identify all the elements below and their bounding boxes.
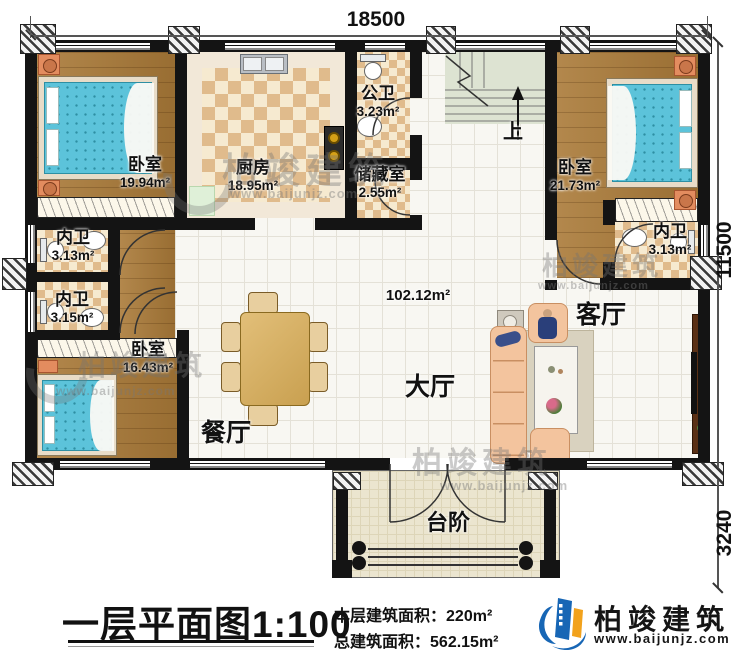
label-bath-left-lower: 内卫 3.15m² [41,290,103,327]
coffee-table [534,346,578,434]
wall-segment [175,218,255,230]
dim-ext [30,16,31,38]
window [365,40,405,52]
dim-ext [707,16,708,38]
room-area: 21.73m² [525,178,625,194]
nightstand [674,190,696,210]
dim-top-value: 18500 [340,8,412,32]
dim-right-main-value: 11500 [713,218,737,282]
room-name: 卧室 [95,155,195,175]
room-name: 储藏室 [340,165,420,185]
room-name: 内卫 [637,222,703,242]
dining-chair [248,292,278,314]
total-area-label: 总建筑面积： [334,634,430,651]
wall-segment [545,52,557,240]
wall-segment [410,52,422,98]
column-base-circle [352,541,366,555]
toilet-tank [360,54,386,62]
step-line [368,548,518,550]
nightstand [674,56,696,76]
pillar [168,26,200,54]
pillow [44,416,55,444]
dining-chair [308,362,328,392]
pillar [333,472,361,490]
porch-column-base [332,560,352,578]
nightstand [38,360,58,373]
bed-sheet-fold [90,380,114,451]
label-bedroom-tr: 卧室 21.73m² [525,158,625,195]
pillar [560,26,590,54]
pillow [46,129,59,166]
room-name: 内卫 [42,228,104,248]
porch-column-base [540,560,560,578]
label-living: 客厅 [571,300,631,330]
wall-segment [545,280,557,290]
window [225,40,335,52]
sink-basin [265,57,284,71]
label-bedroom-tl: 卧室 19.94m² [95,155,195,192]
label-dining: 餐厅 [196,418,256,448]
pillow [679,90,692,127]
window [60,458,150,470]
stove-burner [328,132,340,144]
total-area-stat: 总建筑面积：562.15m² [334,628,499,652]
column-base-circle [519,556,533,570]
person-body [538,317,557,339]
label-porch: 台阶 [412,510,484,536]
wall-segment [25,330,120,340]
wall-segment [315,218,422,230]
window [25,292,37,332]
label-hall-area: 102.12m² [373,287,463,305]
table-decor [548,366,555,373]
room-area: 3.13m² [637,242,703,258]
room-area: 16.43m² [98,360,198,376]
room-name: 公卫 [346,84,410,104]
wall-segment [410,215,422,230]
wall-segment [603,262,615,290]
closet-bedroom-tl [37,197,175,218]
floor-area-value: 220m² [446,608,492,625]
stove-burner [328,150,340,162]
wall-segment [25,272,108,282]
stairs-area [445,52,545,124]
wall-segment [603,200,615,225]
pillar [426,26,456,54]
room-area: 19.94m² [95,175,195,191]
dining-chair [308,322,328,352]
label-bedroom-bl: 卧室 16.43m² [98,340,198,377]
room-area: 2.55m² [340,185,420,201]
label-bath-left-upper: 内卫 3.13m² [42,228,104,265]
title-underline-thick [68,640,314,643]
nightstand [38,180,60,196]
title-underline-thin [68,646,314,647]
step-line [368,564,518,566]
room-area: 3.15m² [41,310,103,326]
label-public-bath: 公卫 3.23m² [346,84,410,121]
floor-area-stat: 本层建筑面积：220m² [334,602,492,626]
wall-segment [108,225,120,338]
window [190,458,325,470]
pillar [2,258,27,290]
toilet-bowl [364,62,382,80]
room-area: 3.13m² [42,248,104,264]
floor-plan: 18500 11500 3240 卧室 19.94m² 厨房 18.95m² 公… [0,0,750,658]
pillar [12,462,54,486]
total-area-value: 562.15m² [430,634,499,651]
label-bath-tr: 内卫 3.13m² [637,222,703,259]
room-name: 卧室 [98,340,198,360]
pillar [528,472,558,490]
sofa-cushions [493,330,524,460]
room-area: 3.23m² [346,104,410,120]
pillow [46,87,59,124]
column-base-circle [519,541,533,555]
window [55,40,150,52]
nightstand [38,54,60,75]
table-decor [558,369,563,374]
wall-segment [175,52,187,218]
dim-line-top [30,35,708,37]
dining-chair [221,362,241,392]
table-flowers [546,398,562,414]
step-line [368,556,518,558]
room-area: 18.95m² [203,178,303,194]
label-hall: 大厅 [400,372,460,402]
room-name: 内卫 [41,290,103,310]
window [450,40,545,52]
window [587,458,672,470]
company-website: www.baijunjz.com [594,631,730,646]
dining-table [240,312,310,406]
pillow [44,384,55,412]
dining-chair [221,322,241,352]
wall-segment [345,52,357,230]
dim-right-porch-value: 3240 [713,505,737,561]
tv-screen [691,352,697,414]
room-name: 卧室 [525,158,625,178]
label-kitchen: 厨房 18.95m² [203,158,303,195]
label-stairs-up: 上 [501,120,525,144]
window [585,40,680,52]
sink-basin [243,57,262,71]
pillow [679,132,692,169]
column-base-circle [352,556,366,570]
label-storage: 储藏室 2.55m² [340,165,420,202]
floor-area-label: 本层建筑面积： [334,608,446,625]
room-name: 厨房 [203,158,303,178]
company-logo-icon [538,594,590,652]
corridor-floor [120,218,175,338]
